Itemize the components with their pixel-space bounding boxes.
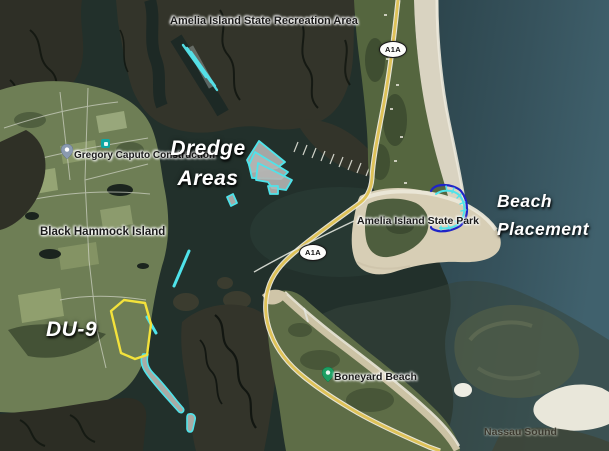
boneyard-beach-label: Boneyard Beach <box>334 371 417 383</box>
nassau-sound-label: Nassau Sound <box>484 426 557 438</box>
a1a-shield-bridge-label: A1A <box>305 248 321 257</box>
dredge-areas-label-line1: Dredge <box>158 134 258 164</box>
dredge-areas-label: Dredge Areas <box>158 134 258 194</box>
beach-placement-label-line2: Placement <box>497 215 589 243</box>
recreation-area-label: Amelia Island State Recreation Area <box>170 15 358 27</box>
black-hammock-label: Black Hammock Island <box>40 226 165 238</box>
dredge-areas-label-line2: Areas <box>158 164 258 194</box>
storefront-poi-icon <box>101 139 110 148</box>
beach-placement-label-line1: Beach <box>497 187 589 215</box>
state-park-label: Amelia Island State Park <box>357 215 479 227</box>
a1a-shield-north: A1A <box>379 41 407 58</box>
satellite-map: A1A A1A Amelia Island State Recreation A… <box>0 0 609 451</box>
a1a-shield-north-label: A1A <box>385 45 401 54</box>
a1a-shield-bridge: A1A <box>299 244 327 261</box>
beach-placement-label: Beach Placement <box>497 187 589 243</box>
marsh-south-central <box>181 304 278 451</box>
du9-label: DU-9 <box>46 318 97 342</box>
